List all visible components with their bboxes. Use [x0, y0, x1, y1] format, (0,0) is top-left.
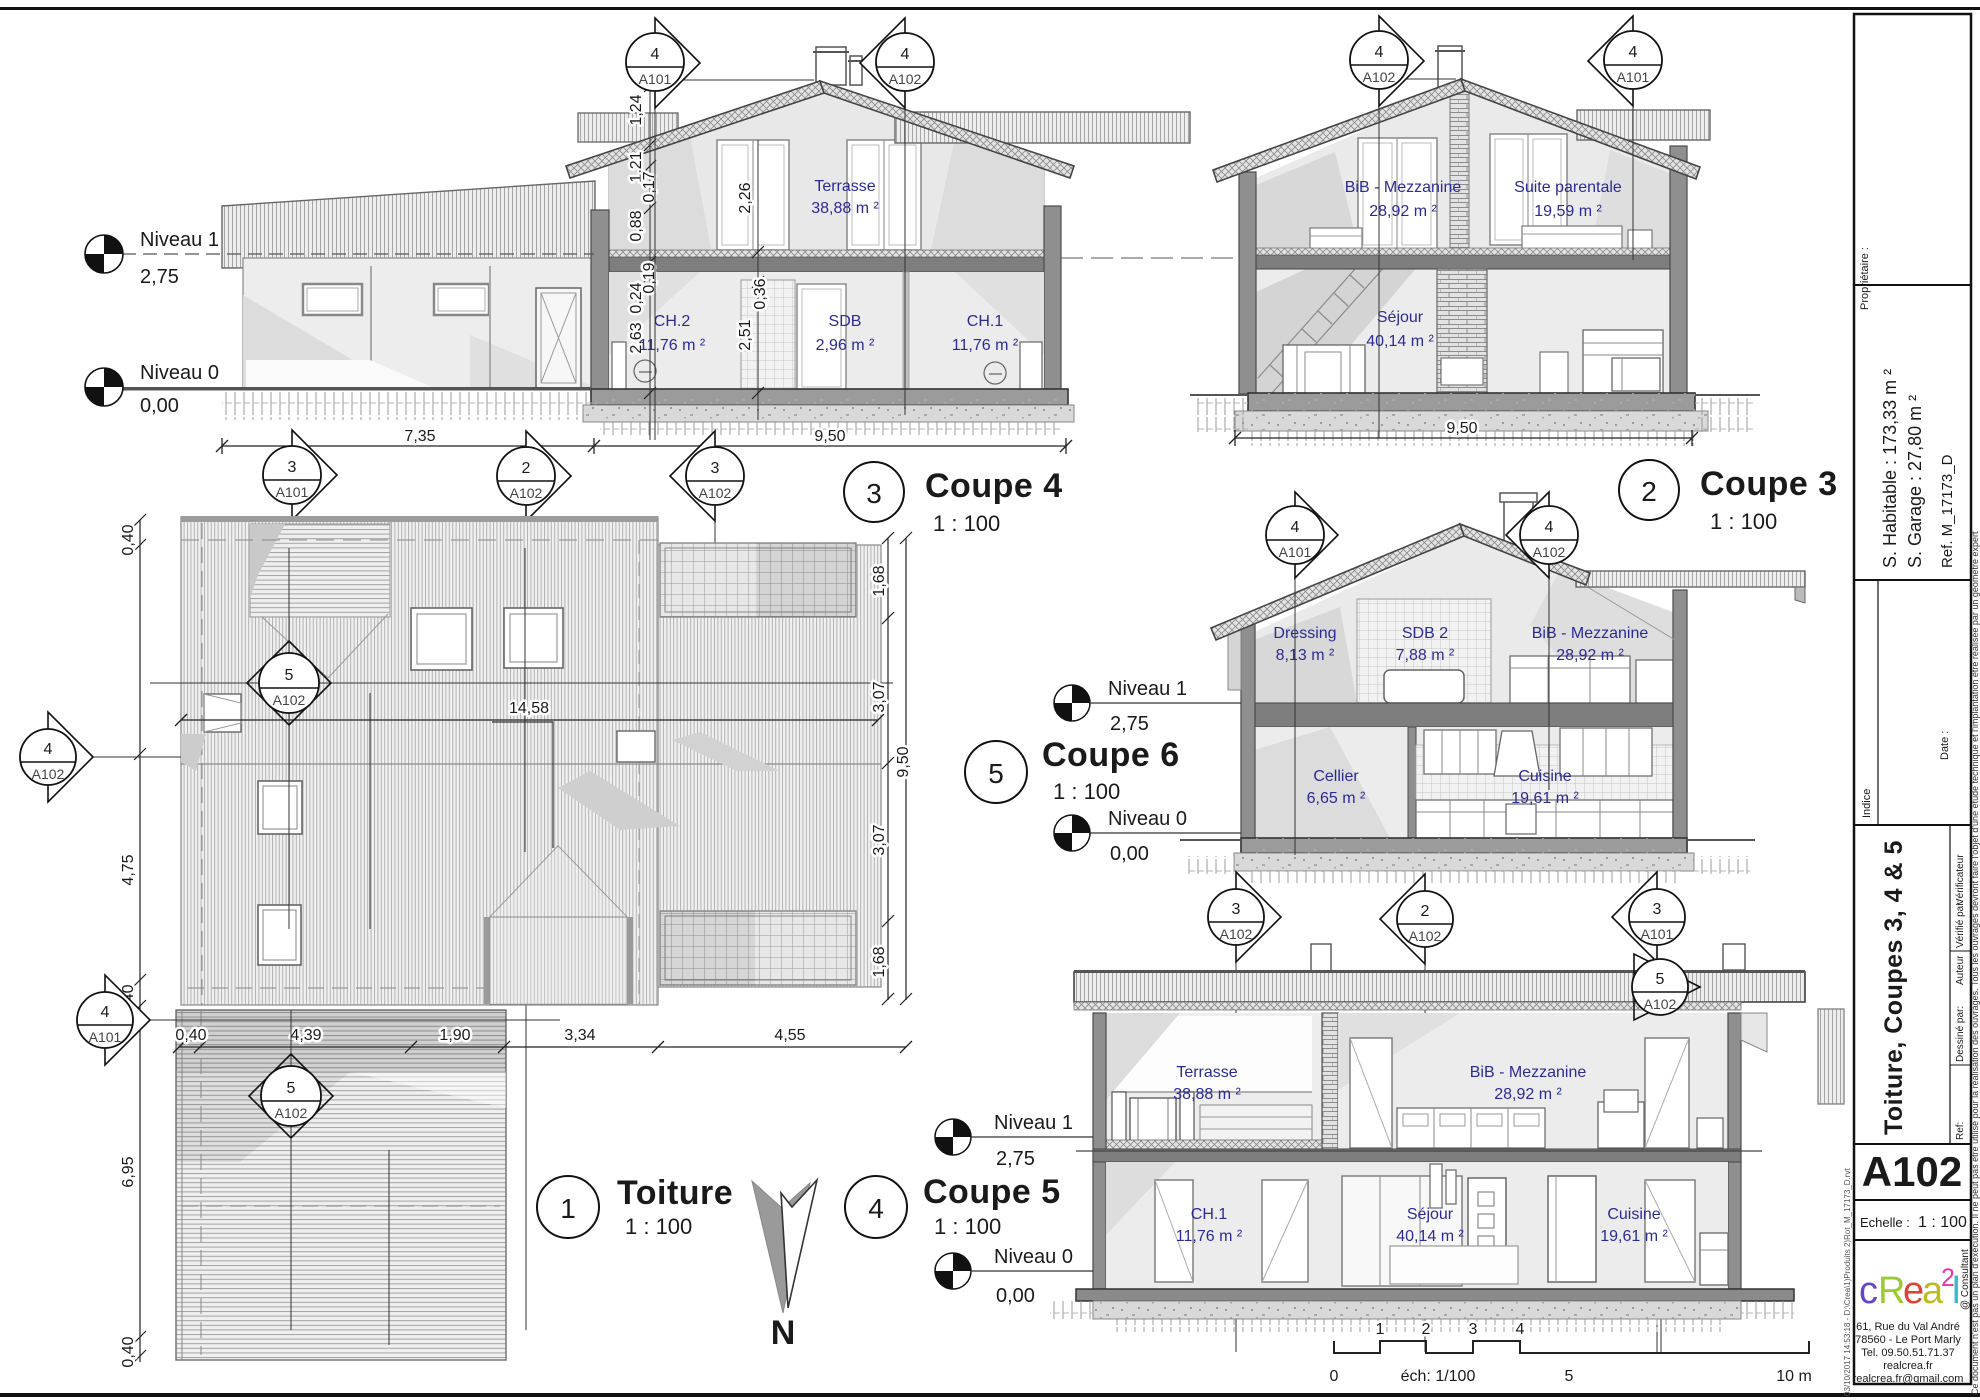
svg-text:40,14 m ²: 40,14 m ²: [1366, 333, 1434, 350]
svg-text:Dressing: Dressing: [1273, 625, 1336, 642]
svg-text:A102: A102: [699, 485, 732, 501]
svg-text:9,50: 9,50: [1446, 420, 1477, 437]
svg-text:2: 2: [1641, 476, 1657, 507]
svg-text:Vérifié par:: Vérifié par:: [1955, 900, 1966, 948]
svg-text:4,75: 4,75: [120, 854, 137, 885]
svg-text:5: 5: [1565, 1368, 1574, 1385]
svg-text:S. Habitable : 173,33 m ²: S. Habitable : 173,33 m ²: [1880, 369, 1900, 568]
svg-text:03/10/2017 14:53:18 - D:\Crea\: 03/10/2017 14:53:18 - D:\Crea\1)Produits…: [1843, 1168, 1852, 1396]
svg-text:Séjour: Séjour: [1407, 1206, 1454, 1223]
svg-text:8,13 m ²: 8,13 m ²: [1276, 647, 1335, 664]
svg-text:CH.1: CH.1: [1191, 1206, 1228, 1223]
svg-text:A102: A102: [1644, 996, 1677, 1012]
svg-text:Cellier: Cellier: [1313, 768, 1359, 785]
svg-text:Niveau 1: Niveau 1: [140, 229, 219, 251]
svg-text:1,68: 1,68: [871, 565, 888, 596]
svg-text:19,61 m ²: 19,61 m ²: [1600, 1228, 1668, 1245]
svg-text:A101: A101: [1279, 544, 1312, 560]
svg-text:A102: A102: [1409, 928, 1442, 944]
svg-text:40,14 m ²: 40,14 m ²: [1396, 1228, 1464, 1245]
svg-text:28,92 m ²: 28,92 m ²: [1494, 1086, 1562, 1103]
svg-text:0,88: 0,88: [628, 210, 645, 241]
svg-text:1 : 100: 1 : 100: [625, 1214, 692, 1239]
svg-text:A102: A102: [1862, 1148, 1962, 1195]
svg-text:Ce document n'est pas un plan: Ce document n'est pas un plan d'exécutio…: [1970, 531, 1980, 1395]
svg-text:9,50: 9,50: [814, 428, 845, 445]
svg-text:3: 3: [1232, 901, 1241, 918]
svg-text:11,76 m ²: 11,76 m ²: [952, 337, 1019, 354]
svg-text:3,07: 3,07: [871, 681, 888, 712]
svg-text:Dessiné par:: Dessiné par:: [1955, 1006, 1966, 1062]
svg-text:2: 2: [1421, 903, 1430, 920]
svg-text:3: 3: [866, 478, 882, 509]
svg-text:R: R: [1878, 1270, 1905, 1312]
svg-text:3: 3: [1653, 901, 1662, 918]
svg-text:4: 4: [868, 1193, 884, 1224]
svg-text:4: 4: [44, 741, 53, 758]
svg-text:3: 3: [288, 459, 297, 476]
svg-text:1,90: 1,90: [439, 1027, 470, 1044]
svg-text:A102: A102: [889, 71, 922, 87]
svg-text:Toiture, Coupes 3, 4 & 5: Toiture, Coupes 3, 4 & 5: [1880, 840, 1908, 1135]
svg-text:5: 5: [1656, 971, 1665, 988]
svg-text:A102: A102: [273, 692, 306, 708]
svg-text:4: 4: [901, 46, 910, 63]
svg-text:CH.2: CH.2: [654, 313, 691, 330]
svg-text:1 : 100: 1 : 100: [1053, 779, 1120, 804]
svg-text:Date :: Date :: [1939, 731, 1951, 760]
svg-text:A101: A101: [1617, 69, 1650, 85]
svg-text:11,76 m ²: 11,76 m ²: [1176, 1228, 1243, 1245]
svg-text:6,95: 6,95: [120, 1156, 137, 1187]
svg-text:19,61 m ²: 19,61 m ²: [1511, 790, 1579, 807]
svg-text:SDB: SDB: [829, 313, 862, 330]
svg-text:Vérificateur: Vérificateur: [1955, 854, 1966, 905]
svg-text:10 m: 10 m: [1776, 1368, 1812, 1385]
svg-text:1: 1: [560, 1193, 576, 1224]
svg-text:4: 4: [1545, 519, 1554, 536]
svg-text:6,65 m ²: 6,65 m ²: [1307, 790, 1366, 807]
svg-text:11,76 m ²: 11,76 m ²: [639, 337, 706, 354]
svg-text:0,40: 0,40: [120, 1336, 137, 1367]
svg-text:Ref:: Ref:: [1955, 1122, 1966, 1140]
svg-text:3: 3: [1469, 1321, 1478, 1338]
svg-text:0,36: 0,36: [752, 278, 769, 309]
svg-text:2,96 m ²: 2,96 m ²: [816, 337, 875, 354]
svg-text:38,88 m ²: 38,88 m ²: [1173, 1086, 1241, 1103]
svg-text:A102: A102: [32, 766, 65, 782]
svg-text:A101: A101: [276, 484, 309, 500]
svg-text:A102: A102: [1220, 926, 1253, 942]
svg-text:A101: A101: [1641, 926, 1674, 942]
svg-text:9,50: 9,50: [895, 746, 912, 777]
svg-text:7,35: 7,35: [404, 428, 435, 445]
svg-text:Echelle :: Echelle :: [1860, 1215, 1910, 1230]
svg-text:Niveau 1: Niveau 1: [1108, 678, 1187, 700]
svg-text:CH.1: CH.1: [967, 313, 1004, 330]
svg-text:SDB 2: SDB 2: [1402, 625, 1448, 642]
svg-text:Coupe 5: Coupe 5: [923, 1173, 1061, 1211]
svg-text:28,92 m ²: 28,92 m ²: [1556, 647, 1624, 664]
svg-text:4: 4: [651, 46, 660, 63]
svg-text:A102: A102: [275, 1105, 308, 1121]
svg-text:7,88 m ²: 7,88 m ²: [1396, 647, 1455, 664]
svg-text:3,07: 3,07: [871, 824, 888, 855]
svg-text:2,75: 2,75: [1110, 713, 1149, 735]
svg-text:Auteur: Auteur: [1955, 955, 1966, 985]
svg-text:A102: A102: [1363, 69, 1396, 85]
svg-text:1 : 100: 1 : 100: [933, 511, 1000, 536]
svg-text:Coupe 4: Coupe 4: [925, 467, 1063, 505]
svg-text:0,24: 0,24: [628, 282, 645, 313]
svg-text:5: 5: [287, 1080, 296, 1097]
svg-text:A101: A101: [639, 71, 672, 87]
svg-text:realcrea.fr: realcrea.fr: [1883, 1360, 1933, 1372]
svg-text:Ref. M_17173_D: Ref. M_17173_D: [1939, 454, 1956, 568]
svg-text:Toiture: Toiture: [617, 1174, 733, 1212]
svg-text:5: 5: [285, 667, 294, 684]
svg-text:38,88 m ²: 38,88 m ²: [811, 200, 879, 217]
svg-text:Coupe 3: Coupe 3: [1700, 465, 1838, 503]
svg-text:78560 - Le Port Marly: 78560 - Le Port Marly: [1855, 1334, 1961, 1346]
svg-text:BiB - Mezzanine: BiB - Mezzanine: [1345, 179, 1462, 196]
svg-text:2,75: 2,75: [140, 266, 179, 288]
svg-text:61, Rue du Val André: 61, Rue du Val André: [1856, 1321, 1960, 1333]
svg-text:4: 4: [1291, 519, 1300, 536]
svg-text:A102: A102: [1533, 544, 1566, 560]
svg-text:0,00: 0,00: [996, 1285, 1035, 1307]
svg-text:0: 0: [1330, 1368, 1339, 1385]
svg-text:c: c: [1859, 1270, 1878, 1312]
svg-text:1 : 100: 1 : 100: [934, 1214, 1001, 1239]
svg-text:4: 4: [1516, 1321, 1525, 1338]
svg-text:éch: 1/100: éch: 1/100: [1401, 1368, 1476, 1385]
svg-text:Niveau 1: Niveau 1: [994, 1112, 1073, 1134]
svg-text:e: e: [1903, 1270, 1924, 1312]
svg-text:2,75: 2,75: [996, 1148, 1035, 1170]
svg-text:2: 2: [1422, 1321, 1431, 1338]
svg-text:0,00: 0,00: [140, 395, 179, 417]
svg-text:0,40: 0,40: [175, 1027, 206, 1044]
svg-text:A102: A102: [510, 485, 543, 501]
svg-text:0,40: 0,40: [120, 524, 137, 555]
svg-text:4,39: 4,39: [290, 1027, 321, 1044]
svg-text:1,24: 1,24: [628, 94, 645, 125]
svg-text:2,26: 2,26: [737, 182, 754, 213]
svg-text:Cuisine: Cuisine: [1607, 1206, 1660, 1223]
svg-text:4: 4: [101, 1004, 110, 1021]
svg-text:Indice: Indice: [1861, 789, 1873, 818]
svg-text:1: 1: [1376, 1321, 1385, 1338]
svg-text:BiB - Mezzanine: BiB - Mezzanine: [1470, 1064, 1587, 1081]
svg-text:Suite parentale: Suite parentale: [1514, 179, 1622, 196]
svg-text:realcrea.fr@gmail.com: realcrea.fr@gmail.com: [1853, 1373, 1964, 1385]
svg-text:Séjour: Séjour: [1377, 309, 1424, 326]
svg-text:4: 4: [1629, 44, 1638, 61]
svg-text:14,58: 14,58: [509, 700, 549, 717]
svg-text:N: N: [771, 1314, 796, 1352]
svg-text:S. Garage : 27,80 m ²: S. Garage : 27,80 m ²: [1905, 395, 1925, 568]
svg-text:2: 2: [522, 460, 531, 477]
svg-text:Cuisine: Cuisine: [1518, 768, 1571, 785]
svg-text:Niveau 0: Niveau 0: [1108, 808, 1187, 830]
svg-text:1 : 100: 1 : 100: [1710, 509, 1777, 534]
svg-text:2,51: 2,51: [737, 319, 754, 350]
svg-text:Niveau 0: Niveau 0: [140, 362, 219, 384]
svg-text:4,55: 4,55: [774, 1027, 805, 1044]
svg-text:Propriétaire :: Propriétaire :: [1859, 247, 1871, 310]
svg-text:0,00: 0,00: [1110, 843, 1149, 865]
svg-text:1,68: 1,68: [871, 946, 888, 977]
svg-text:19,59 m ²: 19,59 m ²: [1534, 203, 1602, 220]
svg-text:A101: A101: [89, 1029, 122, 1045]
svg-text:Terrasse: Terrasse: [814, 178, 875, 195]
svg-text:Terrasse: Terrasse: [1176, 1064, 1237, 1081]
svg-text:5: 5: [988, 758, 1004, 789]
svg-text:3: 3: [711, 460, 720, 477]
svg-text:Tel. 09.50.51.71.37: Tel. 09.50.51.71.37: [1861, 1347, 1955, 1359]
svg-text:Coupe 6: Coupe 6: [1042, 736, 1180, 774]
svg-text:1 : 100: 1 : 100: [1918, 1214, 1967, 1231]
svg-text:Niveau 0: Niveau 0: [994, 1246, 1073, 1268]
svg-text:3,34: 3,34: [564, 1027, 595, 1044]
svg-text:4: 4: [1375, 44, 1384, 61]
